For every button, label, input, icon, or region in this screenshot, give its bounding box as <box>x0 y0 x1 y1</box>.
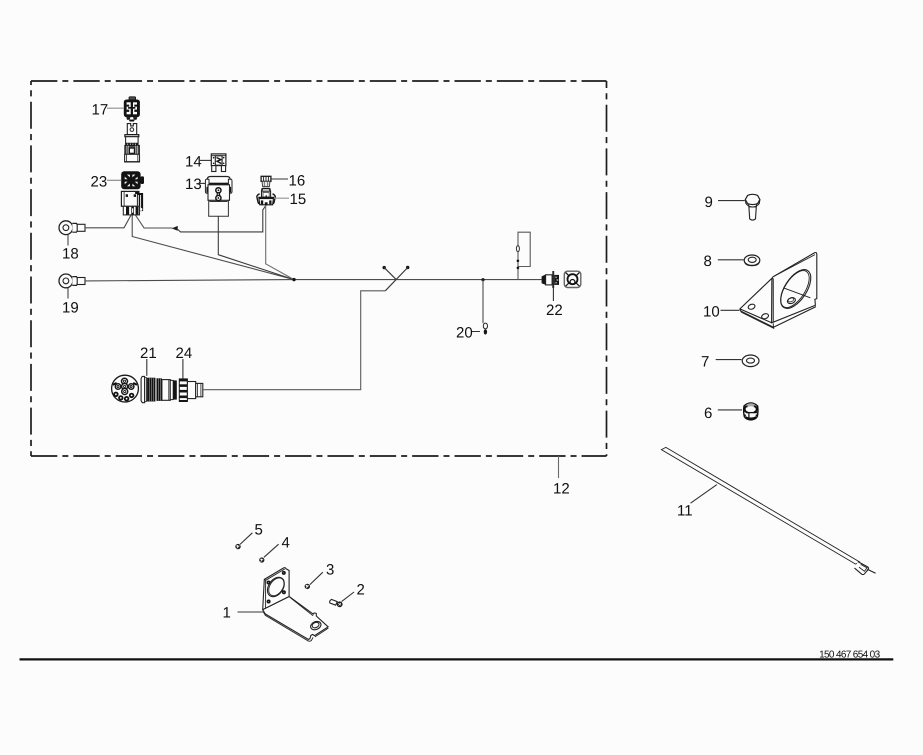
svg-text:12: 12 <box>553 481 570 498</box>
svg-text:8: 8 <box>704 253 712 270</box>
svg-text:3: 3 <box>326 562 334 579</box>
svg-text:23: 23 <box>91 174 108 191</box>
svg-text:2: 2 <box>357 582 365 599</box>
svg-text:10: 10 <box>703 304 720 321</box>
svg-text:22: 22 <box>546 302 563 319</box>
svg-text:13: 13 <box>185 176 202 193</box>
svg-text:18: 18 <box>62 246 79 263</box>
svg-text:19: 19 <box>62 300 79 317</box>
svg-text:9: 9 <box>705 194 713 211</box>
svg-text:14: 14 <box>185 154 202 171</box>
svg-text:15: 15 <box>290 191 307 208</box>
svg-text:4: 4 <box>282 535 290 552</box>
svg-text:6: 6 <box>704 405 712 422</box>
svg-text:5: 5 <box>255 522 263 539</box>
svg-text:150 467 654 03: 150 467 654 03 <box>819 649 881 660</box>
svg-text:1: 1 <box>223 605 231 622</box>
svg-text:24: 24 <box>176 345 193 362</box>
svg-text:7: 7 <box>701 354 709 371</box>
svg-text:20: 20 <box>456 325 473 342</box>
svg-text:21: 21 <box>140 345 157 362</box>
svg-text:11: 11 <box>677 503 693 520</box>
svg-text:17: 17 <box>92 102 109 119</box>
svg-text:16: 16 <box>289 173 306 190</box>
